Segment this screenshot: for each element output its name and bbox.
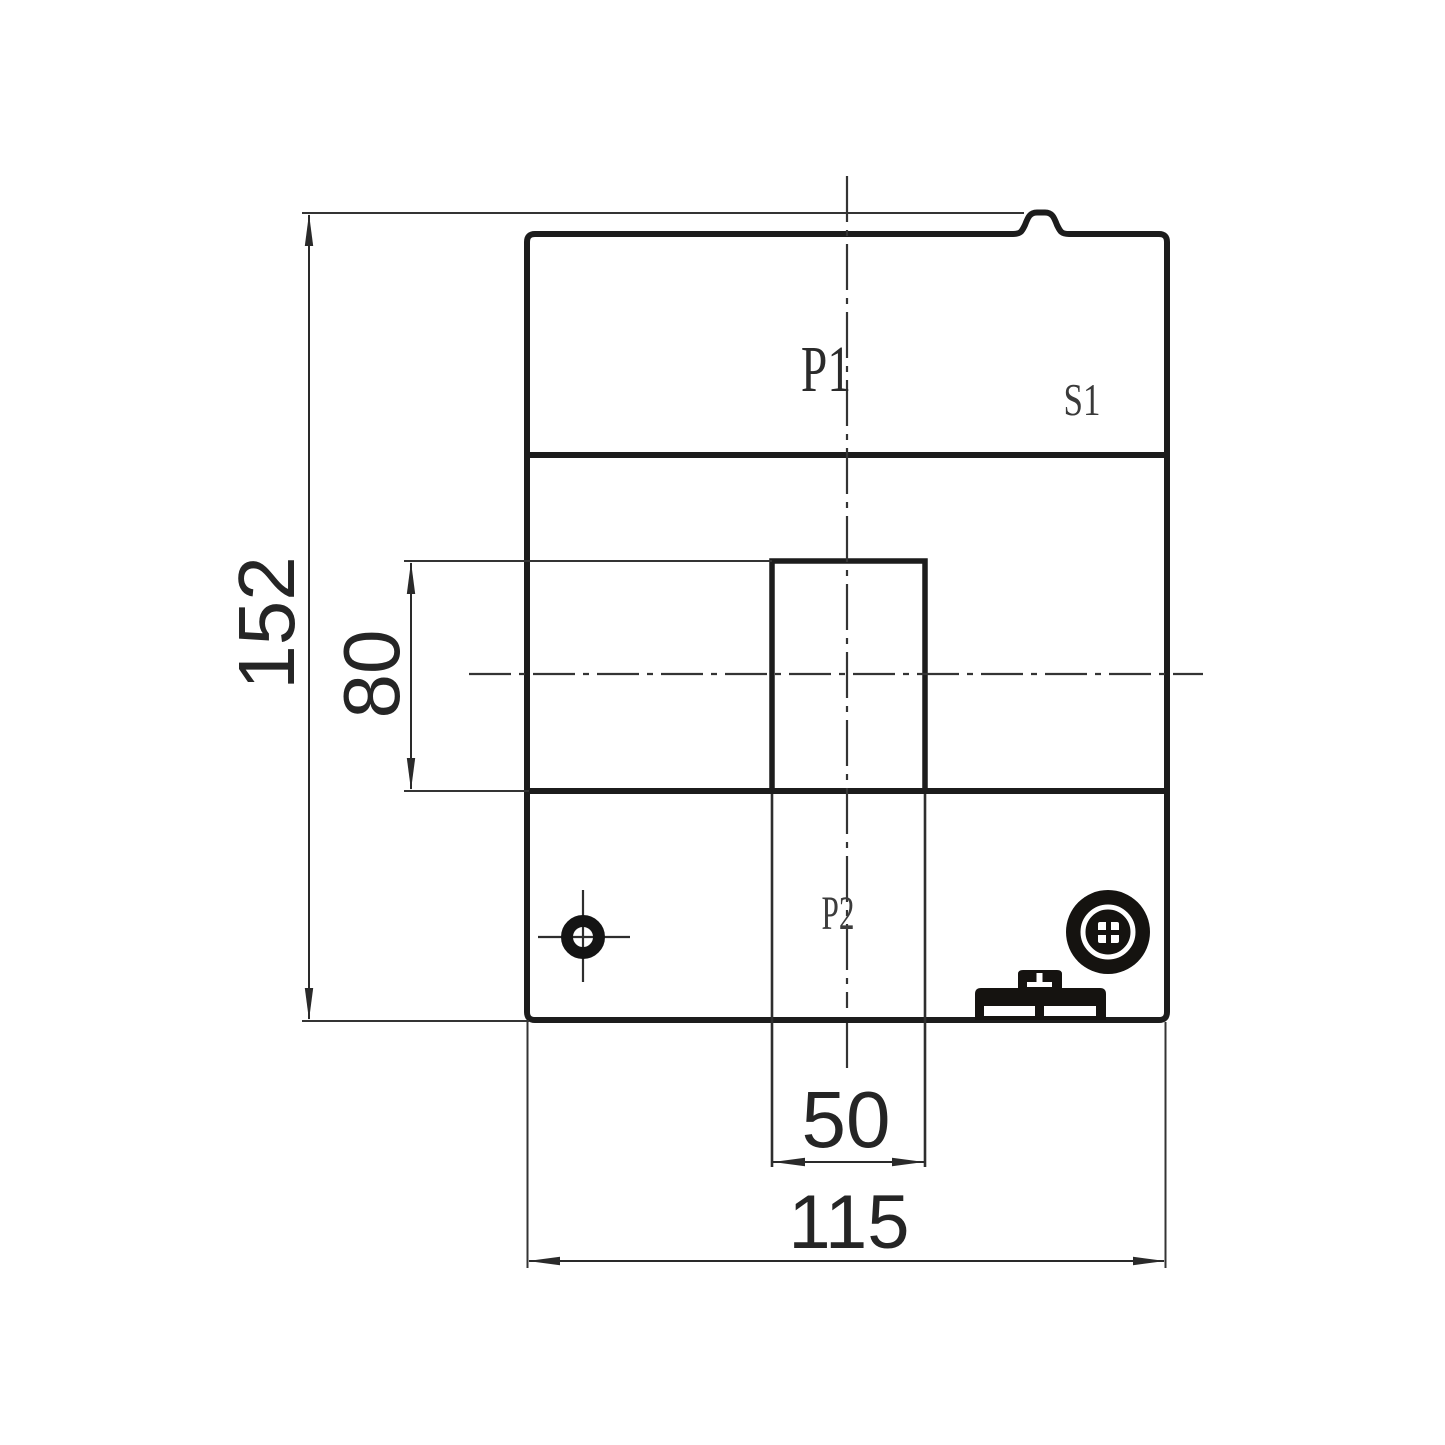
svg-text:152: 152 <box>222 556 311 689</box>
svg-text:50: 50 <box>802 1075 891 1164</box>
svg-text:115: 115 <box>788 1180 909 1265</box>
svg-text:P2: P2 <box>822 886 855 939</box>
svg-text:80: 80 <box>327 630 416 719</box>
svg-text:S1: S1 <box>1064 374 1101 425</box>
svg-text:P1: P1 <box>801 334 851 406</box>
